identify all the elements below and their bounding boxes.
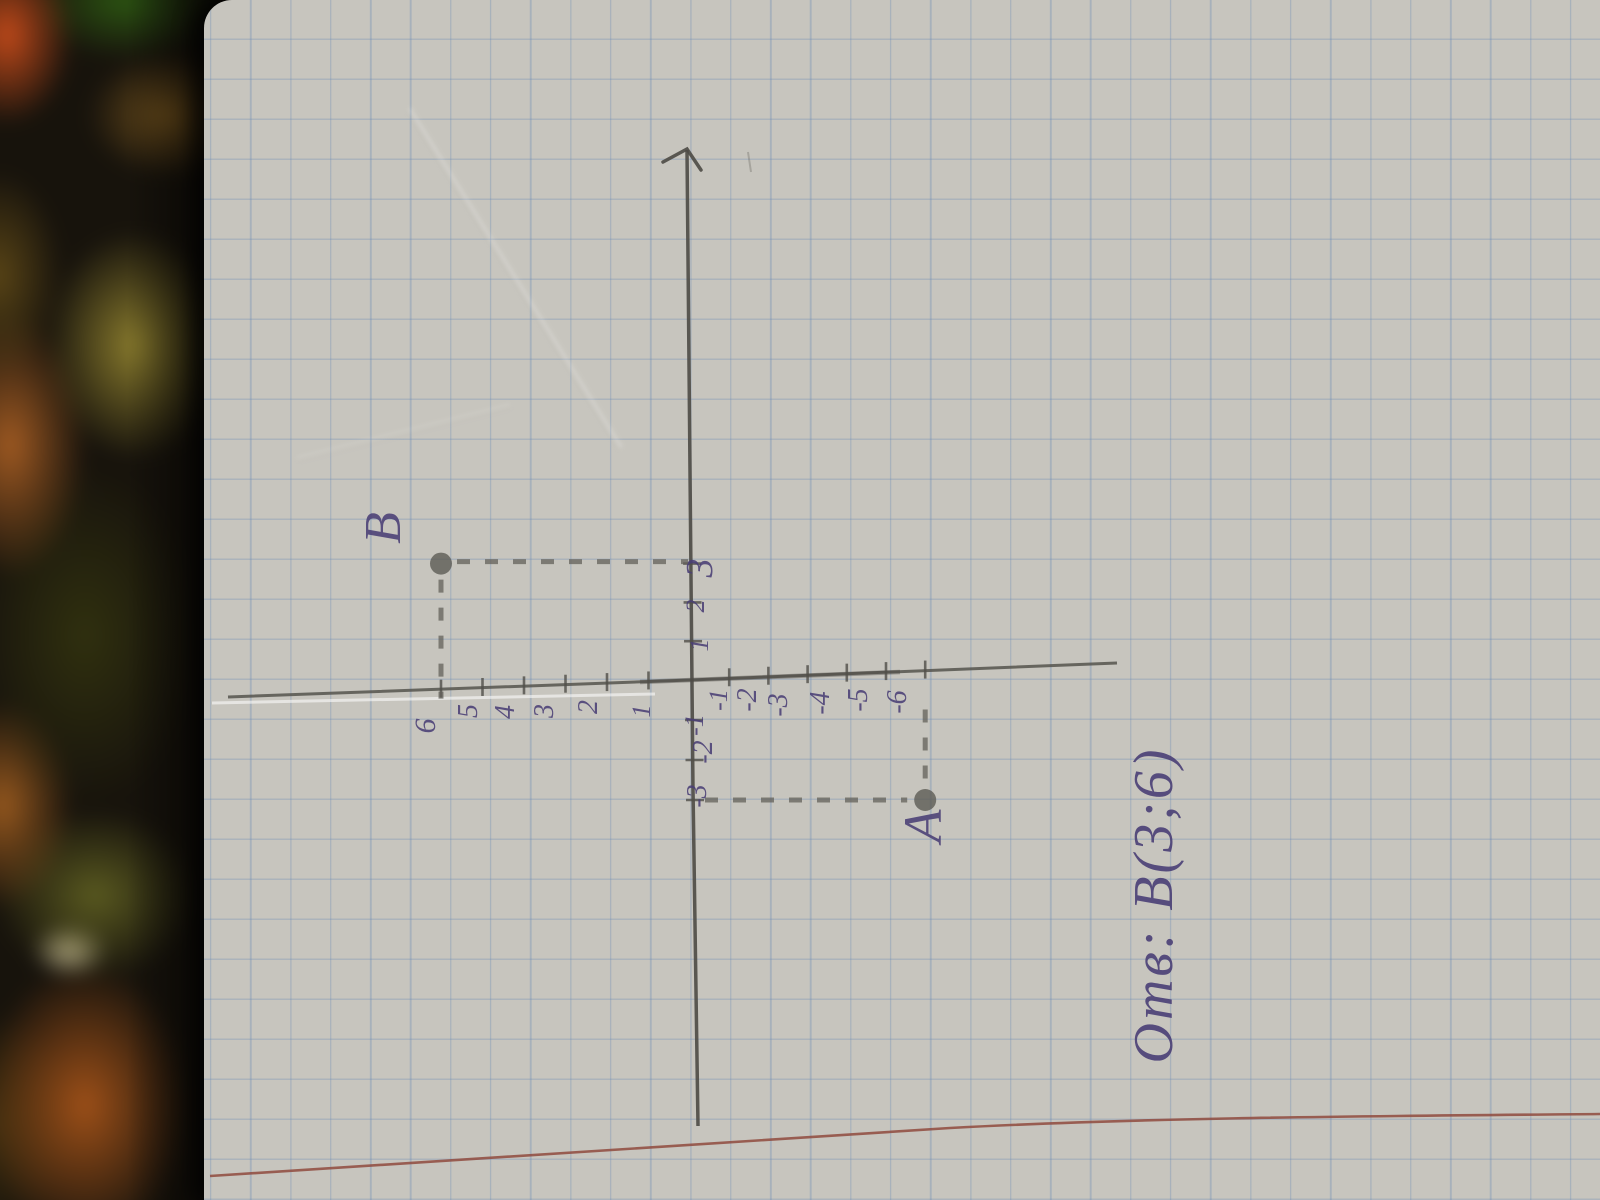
point-dot <box>914 789 936 811</box>
y-axis-tick-label: 3 <box>529 704 560 719</box>
x-axis-tick-label: -2 <box>688 740 719 763</box>
x-axis-tick-label: 2 <box>681 600 710 613</box>
carpet-shadow <box>0 0 230 1200</box>
y-axis-tick-label: -4 <box>805 691 836 714</box>
vertical-axis <box>687 150 698 1126</box>
point-label: В <box>355 512 412 544</box>
x-axis-tick-label: -3 <box>682 784 713 807</box>
carpet <box>0 0 230 1200</box>
y-axis-tick-label: 2 <box>573 700 604 714</box>
point-dot <box>430 553 452 575</box>
x-axis-tick-label: 1 <box>685 639 714 652</box>
axis-arrow-icon <box>663 149 701 170</box>
point-label: А <box>893 809 953 846</box>
y-axis-tick-label: -3 <box>763 693 794 716</box>
y-axis-tick-label: 1 <box>627 705 656 718</box>
y-axis-tick-label: 6 <box>409 719 442 734</box>
y-axis-tick-label: 5 <box>453 704 484 718</box>
notebook-page: Отв: В(3;6) 123-1-2-3123456-1-2-3-4-5-6А… <box>204 0 1600 1200</box>
photo-scene: Отв: В(3;6) 123-1-2-3123456-1-2-3-4-5-6А… <box>0 0 1600 1200</box>
x-axis-tick-label: -1 <box>680 714 709 736</box>
y-axis-tick-label: -6 <box>882 690 913 713</box>
margin-line <box>210 1114 1600 1176</box>
coordinate-plane-sketch: Отв: В(3;6) 123-1-2-3123456-1-2-3-4-5-6А… <box>204 0 1600 1200</box>
y-axis-tick-label: -2 <box>732 688 763 711</box>
y-axis-tick-label: -1 <box>704 689 733 711</box>
y-axis-tick-label: -5 <box>843 688 874 711</box>
answer-text: Отв: В(3;6) <box>1123 747 1185 1064</box>
stray-pencil-mark <box>748 152 751 172</box>
y-axis-tick-label: 4 <box>490 705 521 719</box>
horizontal-axis-retrace <box>640 672 900 682</box>
